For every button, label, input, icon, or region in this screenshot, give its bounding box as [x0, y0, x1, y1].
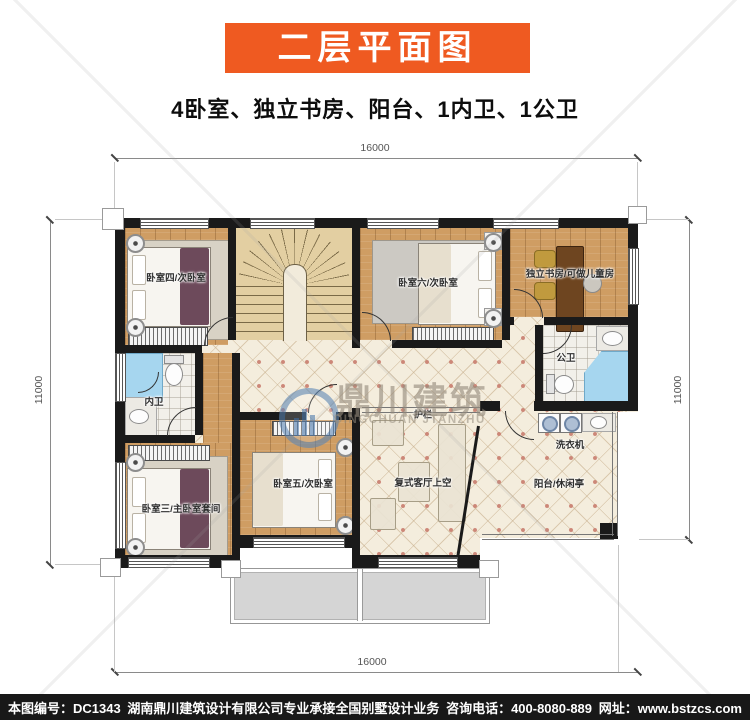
dim-line-left [50, 220, 51, 565]
pillow [318, 493, 332, 521]
laundry-sink [590, 416, 607, 429]
extension-line [618, 545, 619, 672]
wall-study-bottom [544, 317, 638, 325]
wall-innerbath-bottom [115, 435, 195, 443]
dim-line-top [115, 158, 638, 159]
wall-suite-right [232, 353, 240, 568]
wall-innerbath-right [195, 353, 203, 435]
bedroom4-bed [127, 247, 211, 327]
footer-plan-number: 本图编号：DC1343 [8, 698, 121, 717]
sofa [438, 424, 466, 522]
porch-roof-divider [357, 569, 363, 621]
stair-flight-left [236, 286, 283, 340]
blanket [180, 248, 209, 325]
wall-stair-right [352, 218, 360, 348]
bedside-lamp [126, 318, 145, 337]
extension-line [114, 572, 115, 672]
dim-right-value: 11000 [672, 376, 684, 404]
dim-bottom-value: 16000 [357, 656, 386, 668]
exterior [480, 538, 638, 568]
washing-machine [538, 413, 560, 433]
window [253, 537, 345, 548]
window [115, 462, 126, 549]
window [115, 353, 126, 402]
toilet-bowl [165, 363, 183, 386]
wall-bedroom5-top [336, 412, 352, 420]
bedroom5-label: 卧室五/次卧室 [273, 476, 333, 490]
dim-line-bottom [115, 672, 638, 673]
corner-column-marker [628, 206, 647, 224]
wall-publicbath-left [535, 325, 543, 411]
wall-bedroom5-top [240, 412, 306, 420]
stair-flight-right [305, 286, 352, 340]
extension-line [640, 219, 689, 220]
pillow [478, 251, 492, 281]
pillow [132, 255, 146, 285]
bedroom4-label: 卧室四/次卧室 [146, 270, 206, 284]
pillow [132, 290, 146, 320]
study-label: 独立书房/可做儿童房 [526, 266, 614, 280]
porch-notch [479, 560, 499, 578]
floor-plan-poster: 二层平面图 4卧室、独立书房、阳台、1内卫、1公卫 16000 16000 11… [0, 0, 750, 720]
footer-bar: 本图编号：DC1343 湖南鼎川建筑设计有限公司专业承接全国别墅设计业务 咨询电… [0, 694, 750, 720]
wall-study-bottom [510, 317, 514, 325]
extension-line [639, 539, 689, 540]
toilet-bowl [554, 375, 574, 394]
stair-well [283, 264, 307, 341]
suite-vestibule-floor [203, 353, 232, 443]
bedside-lamp [126, 453, 145, 472]
window [628, 248, 639, 305]
bedroom6-label: 卧室六/次卧室 [398, 275, 458, 289]
page-subtitle: 4卧室、独立书房、阳台、1内卫、1公卫 [0, 92, 750, 124]
balcony-railing-right [612, 412, 618, 536]
bedroom3-label: 卧室三/主卧室套间 [142, 501, 221, 515]
exterior [617, 412, 638, 568]
living-void-label: 复式客厅上空 [394, 475, 451, 489]
inner-bath-label: 内卫 [144, 394, 163, 408]
porch-notch [221, 560, 241, 578]
wall-bedroom4-bottom [115, 345, 202, 353]
bedside-lamp [484, 233, 503, 252]
wall-publicbath-bottom [534, 401, 638, 411]
balcony-label: 阳台/休闲亭 [534, 476, 584, 490]
bedroom5-bed [252, 452, 336, 528]
balcony-railing-bottom [482, 534, 614, 540]
corner-column-marker [102, 208, 124, 230]
footer-company: 湖南鼎川建筑设计有限公司专业承接全国别墅设计业务 [127, 698, 439, 717]
sink-basin [602, 331, 623, 346]
public-bath-label: 公卫 [556, 350, 575, 364]
window [367, 218, 439, 229]
armchair [534, 282, 556, 300]
washing-machine [560, 413, 582, 433]
wall-balcony-top [480, 401, 500, 411]
chaise [372, 420, 404, 446]
bedside-lamp [126, 234, 145, 253]
dim-left-value: 11000 [33, 376, 45, 404]
corner-column-marker [100, 558, 121, 577]
extension-line [114, 162, 115, 214]
sofa [370, 498, 396, 530]
window [250, 218, 315, 229]
window [493, 218, 559, 229]
sink-basin [129, 409, 149, 424]
wall-bedroom6-bottom [392, 340, 502, 348]
page-title: 二层平面图 [225, 23, 530, 73]
bedroom5-wardrobe [272, 421, 336, 436]
exterior [240, 548, 358, 568]
window [378, 557, 458, 568]
dim-top-value: 16000 [360, 142, 389, 154]
railing-label: 护栏 [414, 408, 432, 421]
bedside-lamp [484, 309, 503, 328]
window [128, 557, 210, 568]
dim-line-right [689, 220, 690, 540]
wall-living-left [352, 408, 360, 568]
footer-website: 网址：www.bstzcs.com [599, 698, 742, 717]
footer-phone: 咨询电话：400-8080-889 [446, 698, 592, 717]
window [140, 218, 209, 229]
washer-label: 洗衣机 [556, 437, 585, 451]
wall-right [628, 218, 638, 408]
wall-bedroom6-right [502, 228, 510, 340]
